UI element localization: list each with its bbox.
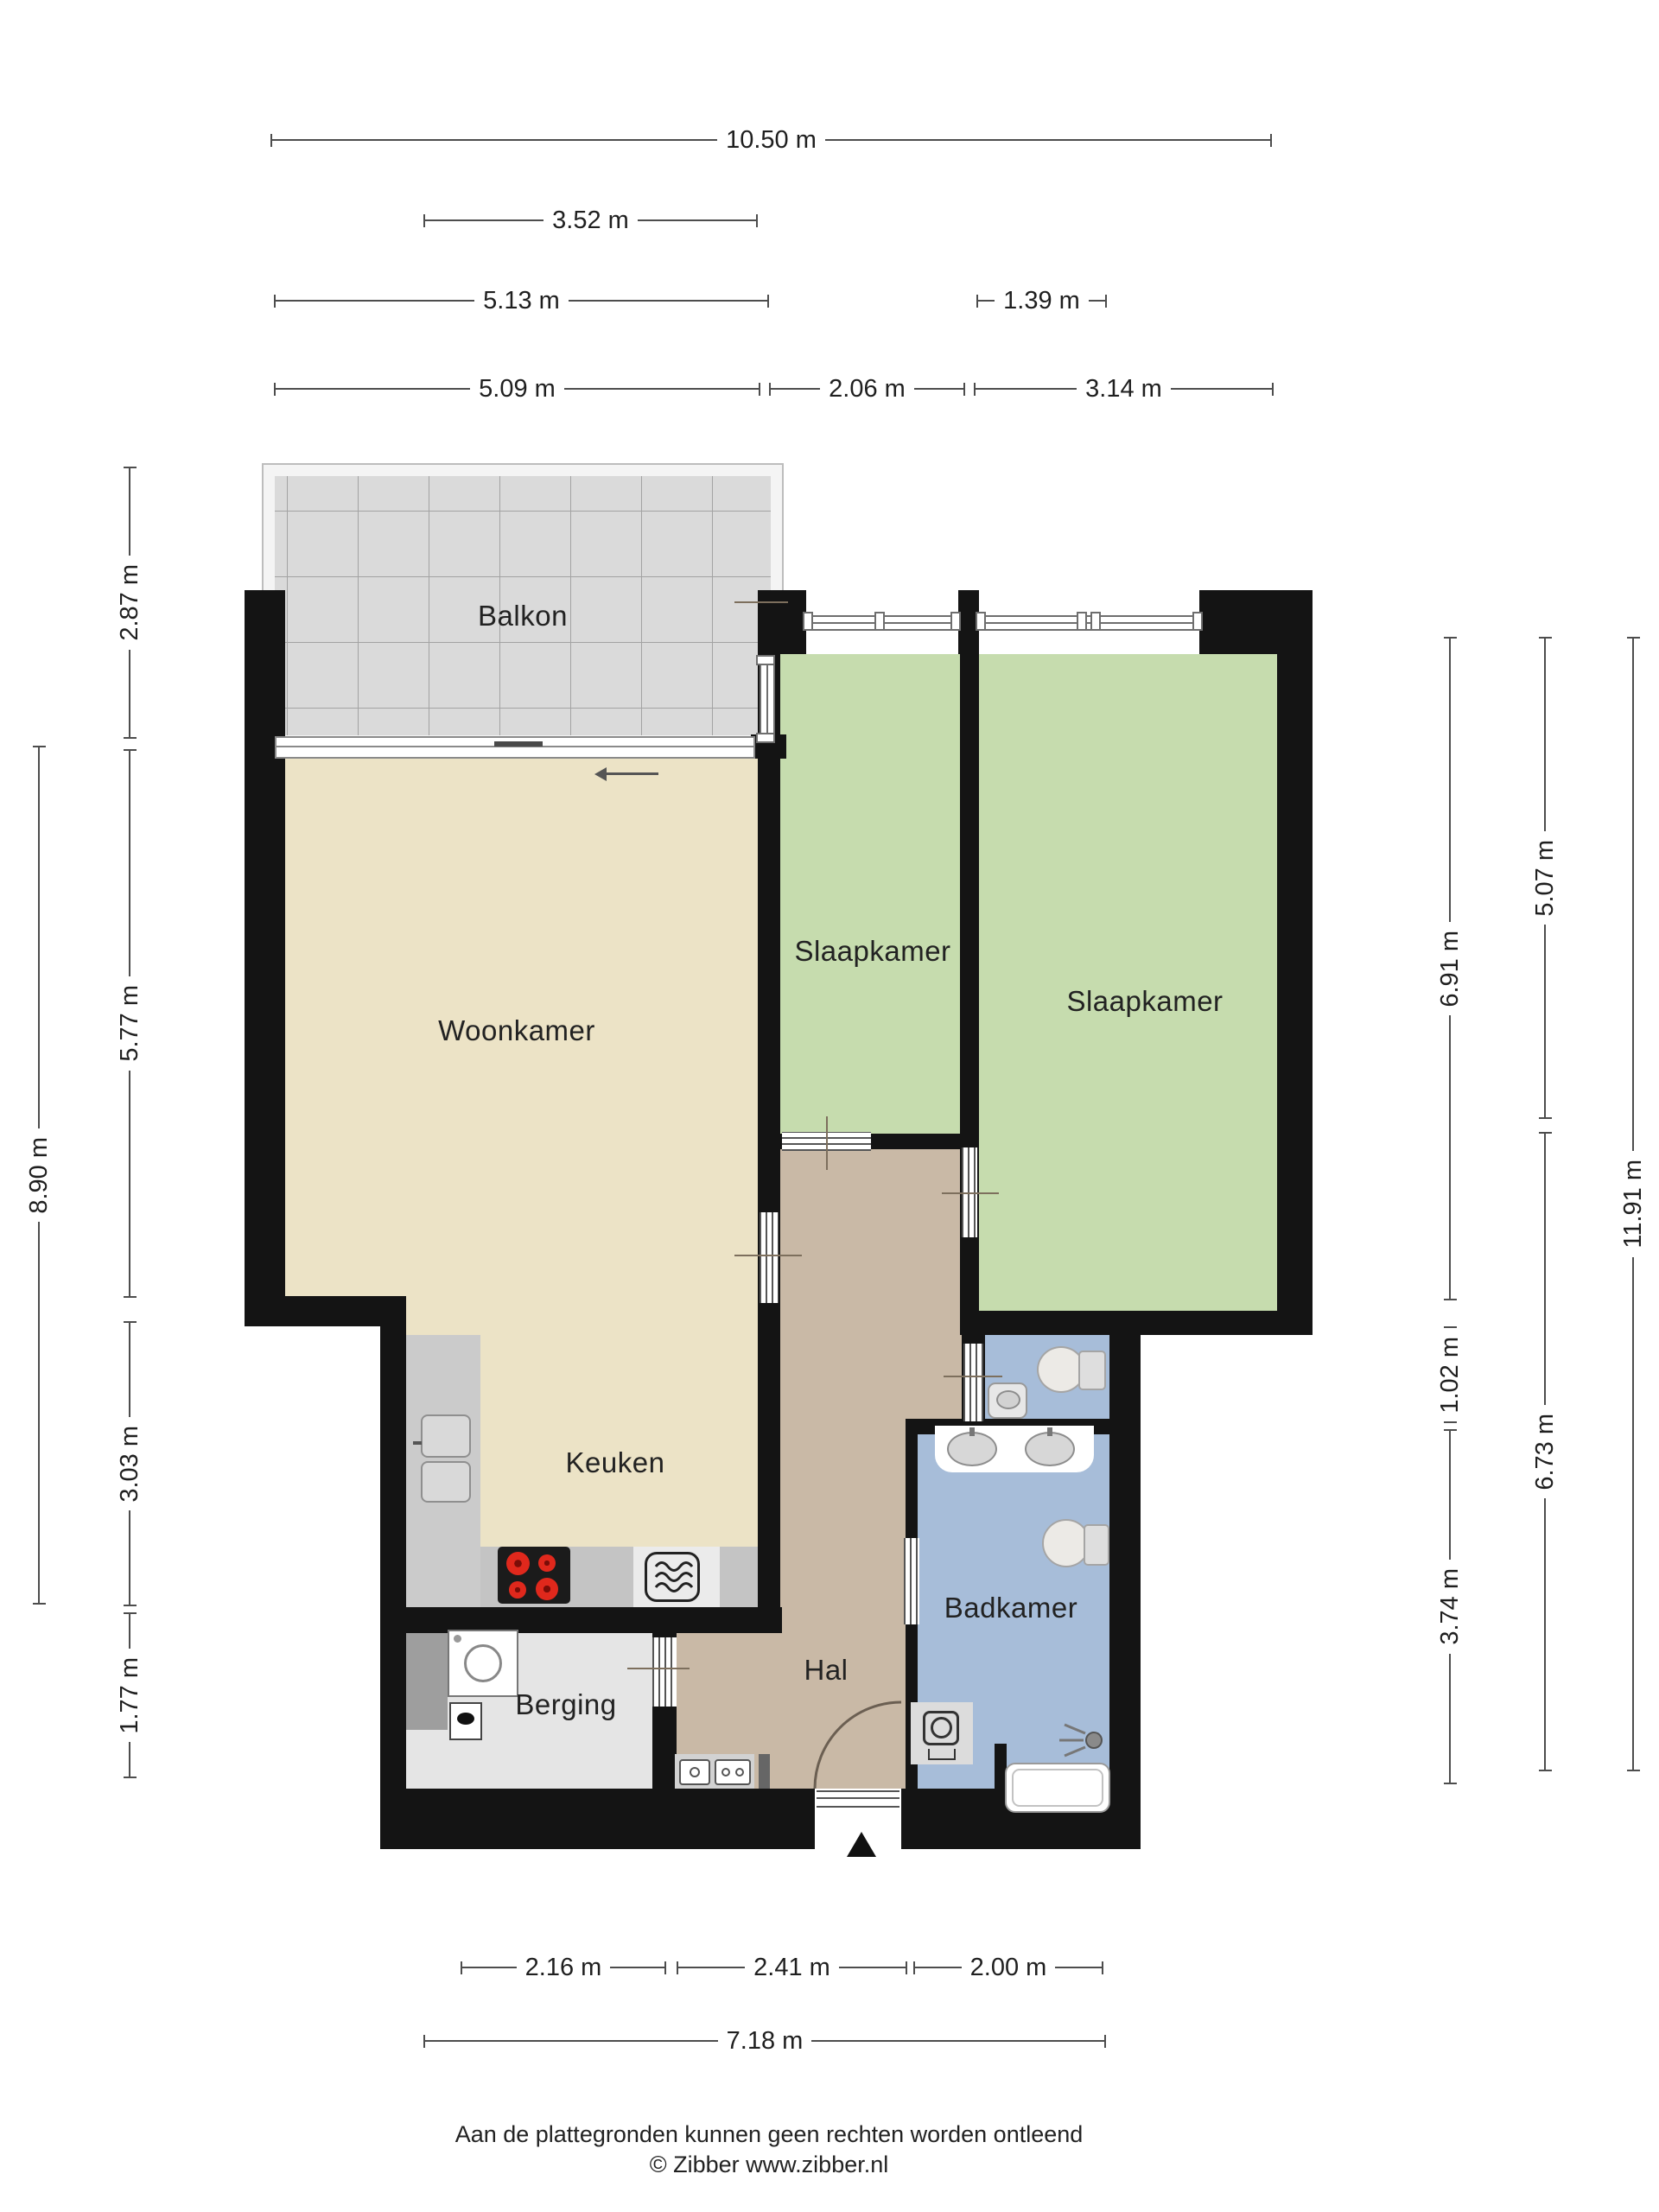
room-label-hal: Hal [696, 1654, 956, 1687]
door-tick [734, 1255, 802, 1256]
dimension-top-left: 5.13 m [274, 287, 769, 315]
dimension-top-total: 10.50 m [270, 126, 1272, 154]
wall [960, 590, 979, 1134]
room-hal-upper [776, 1149, 962, 1421]
window-mullion-icon [756, 655, 775, 665]
room-label-slaapkamer-left: Slaapkamer [743, 935, 1002, 968]
footer-disclaimer: Aan de plattegronden kunnen geen rechten… [0, 2121, 1538, 2148]
wall [245, 590, 285, 1326]
dimension-bottom-hall: 2.41 m [677, 1954, 907, 1981]
door-tick [627, 1668, 690, 1669]
wall [979, 1311, 1313, 1335]
wall [758, 654, 780, 1607]
dimension-right-upper: 5.07 m [1531, 637, 1559, 1119]
room-label-berging: Berging [436, 1688, 696, 1721]
dimension-top-bedroom1: 2.06 m [769, 375, 965, 403]
meter-icon [715, 1759, 751, 1785]
wall [1277, 590, 1313, 1335]
window-mullion-icon [803, 612, 813, 631]
window-mullion-icon [1192, 612, 1203, 631]
hand-basin-icon [988, 1382, 1027, 1419]
dimension-right-total: 11.91 m [1619, 637, 1647, 1771]
window-icon [760, 658, 775, 738]
window-mullion-icon [1090, 612, 1101, 631]
dimension-right-lower: 6.73 m [1531, 1132, 1559, 1771]
door-tick [942, 1192, 999, 1194]
door-tick [826, 1116, 828, 1170]
dimension-bottom-total: 7.18 m [423, 2027, 1106, 2055]
shower-tray [911, 1702, 973, 1764]
kitchen-sink-icon [421, 1414, 471, 1458]
double-washbasin-icon [935, 1426, 1094, 1472]
door-wc [963, 1344, 983, 1421]
slide-direction-arrowhead-icon [594, 767, 607, 781]
toilet-tank-icon [1084, 1524, 1109, 1566]
dimension-top-wc: 1.39 m [976, 287, 1107, 315]
entrance-arrow-icon [847, 1832, 876, 1857]
dimension-bottom-storage: 2.16 m [461, 1954, 666, 1981]
oven-icon [645, 1552, 700, 1602]
room-label-badkamer: Badkamer [881, 1592, 1141, 1624]
room-label-balkon: Balkon [393, 600, 652, 632]
dimension-left-total: 8.90 m [25, 746, 53, 1605]
window-mullion-icon [950, 612, 961, 631]
window-mullion-icon [756, 733, 775, 743]
shower-head-icon [1054, 1719, 1115, 1763]
dimension-left-balcony: 2.87 m [116, 467, 143, 739]
dimension-right-bedroom2: 6.91 m [1436, 637, 1464, 1300]
faucet-icon [413, 1441, 422, 1445]
room-label-slaapkamer-right: Slaapkamer [1015, 985, 1274, 1018]
door-woonkamer-hal [760, 1212, 779, 1303]
dimension-top-bedroom2: 3.14 m [974, 375, 1274, 403]
shaft [759, 1754, 770, 1789]
room-slaapkamer-right [979, 654, 1277, 1311]
slide-direction-arrow-icon [605, 772, 658, 775]
wall [245, 1296, 406, 1326]
wall [380, 1326, 406, 1849]
wall [380, 1607, 782, 1633]
floorplan-page: { "document": { "type": "floorplan", "la… [0, 0, 1659, 2212]
meter-icon [679, 1759, 710, 1785]
window-tick [734, 601, 788, 603]
cooktop-icon [498, 1547, 570, 1604]
dimension-left-livingroom: 5.77 m [116, 749, 143, 1298]
room-label-woonkamer: Woonkamer [387, 1014, 646, 1047]
dimension-bottom-bathroom: 2.00 m [913, 1954, 1103, 1981]
dimension-right-wc: 1.02 m [1436, 1326, 1464, 1423]
door-tick [944, 1376, 1002, 1377]
room-slaapkamer-left [780, 654, 960, 1134]
toilet-tank-icon [1078, 1351, 1106, 1390]
window-mullion-icon [1077, 612, 1087, 631]
dimension-left-kitchen: 3.03 m [116, 1321, 143, 1606]
kitchen-sink-icon [421, 1461, 471, 1503]
wall [758, 590, 806, 654]
window-mullion-icon [874, 612, 885, 631]
window-icon [979, 615, 1199, 631]
footer-copyright: © Zibber www.zibber.nl [0, 2152, 1538, 2178]
dimension-top-balcony: 3.52 m [423, 207, 758, 234]
sliding-door-icon [275, 736, 755, 759]
window-mullion-icon [976, 612, 986, 631]
dimension-right-bathroom: 3.74 m [1436, 1429, 1464, 1784]
shower-curtain-icon [928, 1749, 956, 1760]
dimension-top-livingroom: 5.09 m [274, 375, 760, 403]
washing-machine-icon [448, 1630, 518, 1697]
room-label-keuken: Keuken [486, 1446, 745, 1479]
wall [1199, 590, 1281, 654]
bathtub-icon [1005, 1763, 1110, 1813]
dimension-left-storage: 1.77 m [116, 1612, 143, 1778]
